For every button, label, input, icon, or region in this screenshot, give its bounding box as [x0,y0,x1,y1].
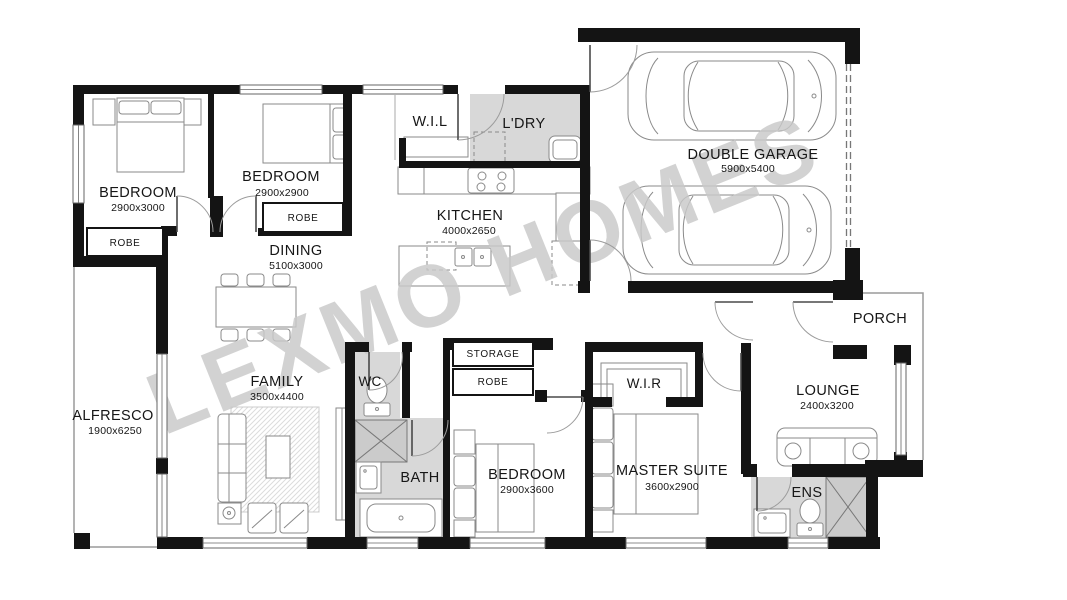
door-bedroom3 [547,397,583,433]
lounge-dims: 2400x3200 [800,400,854,412]
bedroom2-label: BEDROOM [242,169,320,185]
robe-bedroom2-label: ROBE [288,213,319,224]
window [73,125,84,203]
master-dims: 3600x2900 [645,481,699,493]
wir-label: W.I.R [627,376,662,391]
lounge-sofa [777,428,877,466]
window [626,538,706,548]
sliding-door [157,474,167,537]
window [367,538,418,548]
bedroom1-dims: 2900x3000 [111,202,165,214]
ens-label: ENS [791,485,822,501]
window [203,538,307,548]
bedroom3-dims: 2900x3600 [500,484,554,496]
kitchen-label: KITCHEN [437,208,503,224]
garage-dims: 5900x5400 [721,163,775,175]
floor-plan-page: LEXMO HOMES [0,0,1067,600]
alfresco-label: ALFRESCO [72,408,153,424]
family-dims: 3500x4400 [250,391,304,403]
window [363,85,443,94]
window [470,538,545,548]
sliding-door [157,354,167,458]
wil-label: W.I.L [412,114,447,130]
bath-label: BATH [400,470,439,486]
lounge-label: LOUNGE [796,383,860,399]
window [896,363,906,455]
bedroom3-label: BEDROOM [488,467,566,483]
door-master [703,353,741,391]
garage-label: DOUBLE GARAGE [688,147,819,163]
kitchen-dims: 4000x2650 [442,225,496,237]
window [788,538,828,548]
window [240,85,322,94]
dining-label: DINING [269,243,322,259]
family-label: FAMILY [251,374,304,390]
dining-dims: 5100x3000 [269,260,323,272]
door-front-entry [793,302,833,342]
armchair [248,503,276,533]
bedroom2-dims: 2900x2900 [255,187,309,199]
wc-label: WC [358,374,381,389]
door-hall [715,302,753,340]
door-bedroom2 [220,196,256,232]
bedroom1-label: BEDROOM [99,185,177,201]
robe-bedroom1-label: ROBE [110,238,141,249]
toilet [800,499,820,523]
bed-bedroom1 [93,98,201,172]
porch-label: PORCH [853,311,907,327]
door-bedroom1 [177,196,213,232]
coffee-table [266,436,290,478]
side-table [218,503,241,524]
ldry-label: L'DRY [502,116,545,132]
floor-plan-drawing: LEXMO HOMES [0,0,1067,600]
bed-bedroom2 [263,104,350,163]
alfresco-dims: 1900x6250 [88,425,142,437]
robe-bedroom3-label: ROBE [478,377,509,388]
master-label: MASTER SUITE [616,463,728,479]
armchair [280,503,308,533]
cooktop [468,168,514,193]
storage-label: STORAGE [467,349,520,360]
